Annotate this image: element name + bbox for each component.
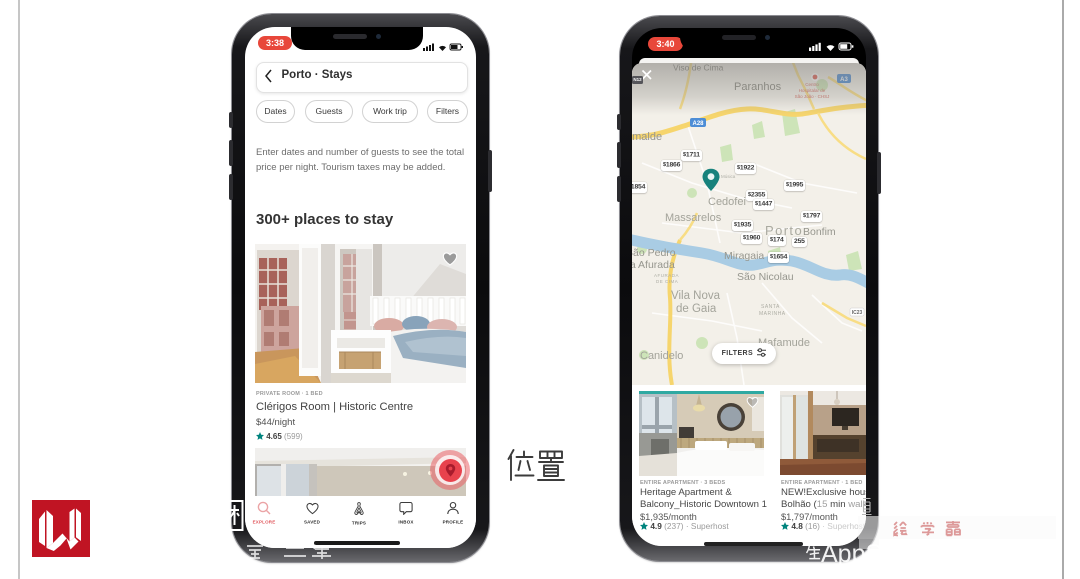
svg-text:A28: A28 bbox=[692, 121, 704, 127]
svg-text:São Nicolau: São Nicolau bbox=[737, 271, 794, 283]
svg-text:SANTA: SANTA bbox=[761, 304, 780, 310]
svg-text:Vila Nova: Vila Nova bbox=[671, 290, 721, 302]
svg-text:Miragaia: Miragaia bbox=[724, 250, 764, 262]
svg-text:AFURADA: AFURADA bbox=[654, 273, 679, 278]
svg-text:DE CIMA: DE CIMA bbox=[656, 279, 678, 284]
svg-text:IC23: IC23 bbox=[852, 310, 863, 316]
svg-text:MARINHA: MARINHA bbox=[759, 311, 786, 317]
svg-text:de Gaia: de Gaia bbox=[676, 303, 717, 315]
svg-text:Massarelos: Massarelos bbox=[665, 212, 722, 224]
svg-text:Canidelo: Canidelo bbox=[640, 350, 683, 362]
svg-text:Cedofei: Cedofei bbox=[708, 196, 746, 208]
svg-text:amalde: amalde bbox=[632, 131, 662, 143]
svg-text:São Pedro: São Pedro bbox=[632, 247, 676, 259]
svg-text:da Afurada: da Afurada bbox=[632, 259, 675, 271]
svg-text:Bonfim: Bonfim bbox=[803, 226, 836, 238]
